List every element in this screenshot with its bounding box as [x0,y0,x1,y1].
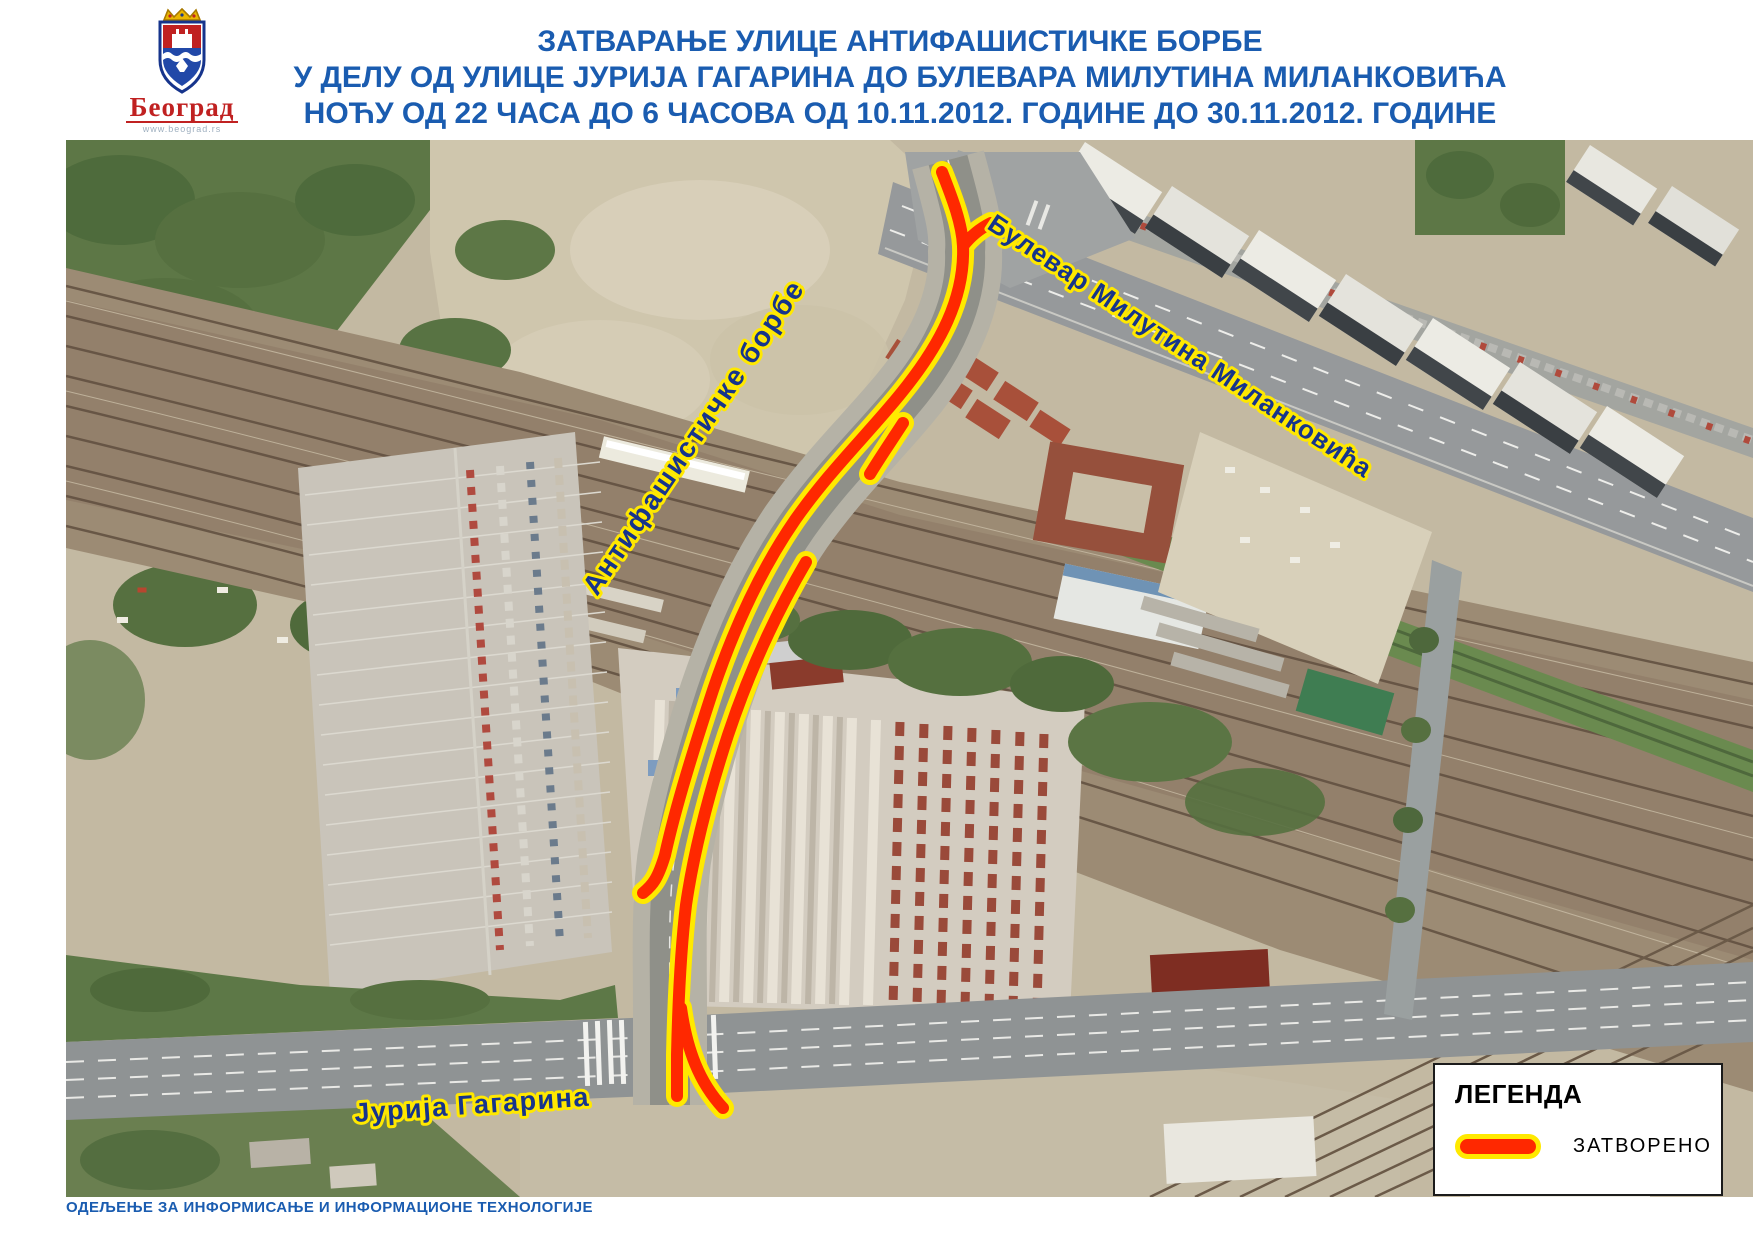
belgrade-coat-of-arms-icon [150,8,214,94]
aerial-map: Булевар Милутина Миланковића Антифашисти… [66,140,1753,1197]
aerial-map-canvas: Булевар Милутина Миланковића Антифашисти… [66,140,1753,1197]
department-note: ОДЕЉЕЊЕ ЗА ИНФОРМИСАЊЕ И ИНФОРМАЦИОНЕ ТЕ… [66,1199,593,1216]
title-line-2: У ДЕЛУ ОД УЛИЦЕ ЈУРИЈА ГАГАРИНА ДО БУЛЕВ… [255,60,1545,96]
city-name: Београд [126,94,239,123]
legend-box: ЛЕГЕНДА ЗАТВОРЕНО [1433,1063,1723,1196]
title-line-1: ЗАТВАРАЊЕ УЛИЦЕ АНТИФАШИСТИЧКЕ БОРБЕ [255,24,1545,60]
closed-road-label: ЗАТВОРЕНО [1573,1135,1712,1158]
closed-road-symbol [1455,1134,1541,1159]
poster-title: ЗАТВАРАЊЕ УЛИЦЕ АНТИФАШИСТИЧКЕ БОРБЕ У Д… [255,24,1545,132]
parking-lot [298,432,612,995]
legend-title: ЛЕГЕНДА [1455,1079,1721,1110]
title-line-3: НОЋУ ОД 22 ЧАСА ДО 6 ЧАСОВА ОД 10.11.201… [255,96,1545,132]
white-shed [1164,1116,1317,1184]
legend-row-closed: ЗАТВОРЕНО [1455,1134,1721,1159]
